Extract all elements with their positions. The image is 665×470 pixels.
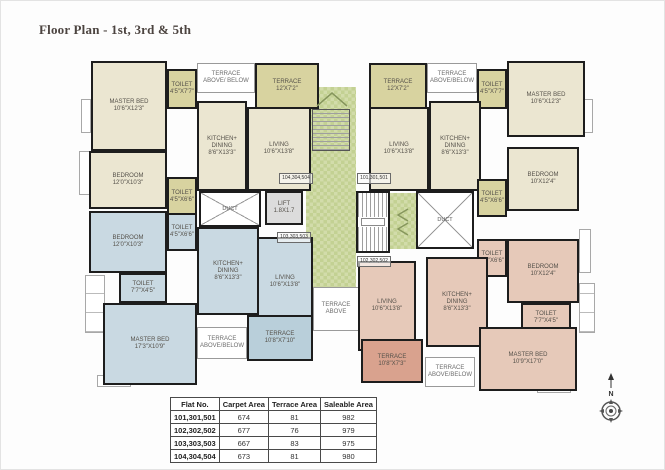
room-label: TERRACEABOVE <box>314 288 358 330</box>
label-line: LIVING <box>269 142 289 149</box>
lift: LIFT1.8X1.7 <box>265 191 303 225</box>
room-living-bottom-left: LIVING10'6"X13'8" <box>257 237 313 327</box>
room-toilet-top-right-2: TOILET4'5"X6'6" <box>477 179 507 217</box>
label-line: TOILET <box>482 191 503 198</box>
flat-no-cell: 104,304,504 <box>171 450 220 463</box>
room-label: TERRACE12'X7'2" <box>371 65 425 107</box>
label-line: 12'0"X10'3" <box>113 180 144 187</box>
label-line: 12'X7'2" <box>387 86 409 93</box>
room-master-bed-bottom-right: MASTER BED10'9"X17'0" <box>479 327 577 391</box>
terrace-above-below-top-right: TERRACEABOVE/BELOW <box>427 63 477 93</box>
label-line: 10'9"X17'0" <box>513 359 544 366</box>
room-toilet-bottom-left-1: TOILET4'5"X6'6" <box>167 213 197 251</box>
room-label: KITCHEN+DINING8'6"X13'3" <box>431 103 479 189</box>
label-line: DINING <box>445 143 466 150</box>
room-master-bed-top-right: MASTER BED10'6"X12'3" <box>507 61 585 137</box>
table-header-row: Flat No.Carpet AreaTerrace AreaSaleable … <box>171 398 377 411</box>
room-bedroom-top-left: BEDROOM12'0"X10'3" <box>89 151 167 209</box>
room-label: MASTER BED10'6"X12'3" <box>509 63 583 135</box>
area-value-cell: 76 <box>268 424 320 437</box>
stair-direction-arrows <box>390 193 416 249</box>
area-value-cell: 83 <box>268 437 320 450</box>
room-label: BEDROOM12'0"X10'3" <box>91 213 165 271</box>
label-line: ABOVE <box>326 309 347 316</box>
label-line: TERRACE <box>266 331 295 338</box>
room-label: BEDROOM10'X12'4" <box>509 149 577 209</box>
room-kitchen-bottom-left: KITCHEN+DINING8'6"X13'3" <box>197 227 259 315</box>
label-line: ABOVE/BELOW <box>428 372 472 379</box>
label-line: TERRACE <box>384 79 413 86</box>
label-line: KITCHEN+ <box>440 136 470 143</box>
staircase-top <box>312 109 350 151</box>
table-row: 104,304,50467381980 <box>171 450 377 463</box>
label-line: 10'8"X7'3" <box>378 361 405 368</box>
duct-left: DUCT <box>199 191 261 227</box>
stair-flight-lower <box>358 227 388 251</box>
duct-right: DUCT <box>416 191 474 249</box>
label-line: 7'7"X4'5" <box>131 288 155 295</box>
room-kitchen-top-left: KITCHEN+DINING8'6"X13'3" <box>197 101 247 191</box>
label-line: TERRACE <box>438 71 467 78</box>
stair-break-line <box>314 89 350 109</box>
label-line: BEDROOM <box>527 264 558 271</box>
label-line: 12'0"X10'3" <box>113 242 144 249</box>
room-label: TOILET4'5"X6'6" <box>479 181 505 215</box>
table-row: 103,303,50366783975 <box>171 437 377 450</box>
room-label: LIVING10'6"X13'8" <box>259 239 311 325</box>
label-line: LIFT <box>278 201 290 208</box>
label-line: 10'6"X13'8" <box>270 282 301 289</box>
label-line: LIVING <box>275 275 295 282</box>
label-line: DINING <box>212 143 233 150</box>
label-line: MASTER BED <box>130 337 169 344</box>
label-line: 10'6"X12'3" <box>531 99 562 106</box>
terrace-above-center: TERRACEABOVE <box>313 287 359 331</box>
stair-handrail <box>361 218 385 226</box>
stair-landing <box>390 193 416 249</box>
label-line: LIVING <box>377 299 397 306</box>
room-label: TOILET4'5"X7'7" <box>169 71 195 107</box>
label-line: TOILET <box>172 82 193 89</box>
label-line: KITCHEN+ <box>207 136 237 143</box>
duct-label: DUCT <box>437 217 452 223</box>
label-line: TERRACE <box>212 71 241 78</box>
label-line: MASTER BED <box>526 92 565 99</box>
bay-window <box>85 275 105 333</box>
room-master-bed-top-left: MASTER BED10'6"X12'3" <box>91 61 167 151</box>
area-value-cell: 677 <box>219 424 268 437</box>
label-line: KITCHEN+ <box>442 292 472 299</box>
room-bedroom-bottom-left: BEDROOM12'0"X10'3" <box>89 211 167 273</box>
area-value-cell: 673 <box>219 450 268 463</box>
room-label: TERRACEABOVE/BELOW <box>428 64 476 92</box>
label-line: TERRACE <box>208 336 237 343</box>
room-label: TERRACE10'8"X7'3" <box>363 341 421 381</box>
terrace-above-below-bottom-right: TERRACEABOVE/BELOW <box>425 357 475 387</box>
room-label: TERRACE12'X7'2" <box>257 65 317 107</box>
room-label: TOILET4'5"X6'6" <box>169 215 195 249</box>
north-compass: N <box>595 373 627 427</box>
bay-window <box>579 229 591 273</box>
room-label: BEDROOM12'0"X10'3" <box>91 153 165 207</box>
room-label: TERRACEABOVE/BELOW <box>198 328 246 358</box>
label-line: LIVING <box>389 142 409 149</box>
label-line: BEDROOM <box>112 173 143 180</box>
room-label: MASTER BED10'6"X12'3" <box>93 63 165 149</box>
table-row: 102,302,50267776979 <box>171 424 377 437</box>
label-line: KITCHEN+ <box>213 261 243 268</box>
label-line: 4'5"X7'7" <box>480 89 504 96</box>
room-bedroom-top-right: BEDROOM10'X12'4" <box>507 147 579 211</box>
label-line: 10'8"X7'10" <box>265 338 296 345</box>
label-line: 17'3"X10'9" <box>135 344 166 351</box>
area-table: Flat No.Carpet AreaTerrace AreaSaleable … <box>170 397 377 463</box>
label-line: TOILET <box>536 311 557 318</box>
staircase-main <box>356 191 390 253</box>
duct-label: DUCT <box>222 206 237 212</box>
label-line: TOILET <box>133 281 154 288</box>
room-label: KITCHEN+DINING8'6"X13'3" <box>199 229 257 313</box>
label-line: 10'6"X13'8" <box>384 149 415 156</box>
terrace-above-below-top-left: TERRACEABOVE/ BELOW <box>197 63 255 93</box>
room-label: TOILET7'7"X4'5" <box>121 275 165 301</box>
label-line: TERRACE <box>322 302 351 309</box>
area-value-cell: 81 <box>268 450 320 463</box>
label-line: 8'6"X13'3" <box>441 150 468 157</box>
label-line: TOILET <box>172 225 193 232</box>
label-line: 12'X7'2" <box>276 86 298 93</box>
bay-window <box>579 283 595 333</box>
label-line: DINING <box>447 299 468 306</box>
room-master-bed-bottom-left: MASTER BED17'3"X10'9" <box>103 303 197 385</box>
area-value-cell: 975 <box>321 437 377 450</box>
label-line: 8'6"X13'3" <box>214 275 241 282</box>
label-line: TERRACE <box>436 365 465 372</box>
table-header-cell: Carpet Area <box>219 398 268 411</box>
label-line: BEDROOM <box>527 172 558 179</box>
floor-plan-page: Floor Plan - 1st, 3rd & 5th MASTER BED10… <box>0 0 665 470</box>
compass-n-label: N <box>608 391 613 398</box>
room-toilet-bottom-left-2: TOILET7'7"X4'5" <box>119 273 167 303</box>
table-header-cell: Terrace Area <box>268 398 320 411</box>
room-terrace-top-right: TERRACE12'X7'2" <box>369 63 427 109</box>
room-bedroom-bottom-right: BEDROOM10'X12'4" <box>507 239 579 303</box>
room-label: TERRACE10'8"X7'10" <box>249 317 311 359</box>
label-line: 7'7"X4'5" <box>534 318 558 325</box>
room-toilet-top-left-2: TOILET4'5"X6'6" <box>167 177 197 217</box>
room-label: LIVING10'6"X13'8" <box>360 263 414 349</box>
area-value-cell: 979 <box>321 424 377 437</box>
stair-flight-upper <box>358 193 388 217</box>
room-toilet-top-right-1: TOILET4'5"X7'7" <box>477 69 507 109</box>
label-line: DINING <box>218 268 239 275</box>
room-kitchen-top-right: KITCHEN+DINING8'6"X13'3" <box>429 101 481 191</box>
page-title: Floor Plan - 1st, 3rd & 5th <box>39 22 191 38</box>
flat-number-badge-top-right: 101,301,501 <box>357 173 391 184</box>
flat-number-badge-top-left: 104,304,504 <box>279 173 313 184</box>
room-label: KITCHEN+DINING8'6"X13'3" <box>199 103 245 189</box>
flat-no-cell: 102,302,502 <box>171 424 220 437</box>
room-label: KITCHEN+DINING8'6"X13'3" <box>428 259 486 345</box>
room-label: MASTER BED10'9"X17'0" <box>481 329 575 389</box>
label-line: ABOVE/BELOW <box>430 78 474 85</box>
label-line: 4'5"X6'6" <box>170 232 194 239</box>
terrace-above-below-bottom-left: TERRACEABOVE/BELOW <box>197 327 247 359</box>
table-header-cell: Saleable Area <box>321 398 377 411</box>
room-label: TERRACEABOVE/ BELOW <box>198 64 254 92</box>
label-line: ABOVE/ BELOW <box>203 78 249 85</box>
flat-no-cell: 103,303,503 <box>171 437 220 450</box>
table-row: 101,301,50167481982 <box>171 411 377 424</box>
area-value-cell: 674 <box>219 411 268 424</box>
label-line: 10'6"X13'8" <box>264 149 295 156</box>
area-value-cell: 982 <box>321 411 377 424</box>
room-terrace-bottom-right: TERRACE10'8"X7'3" <box>361 339 423 383</box>
bay-window <box>81 99 91 133</box>
flat-no-cell: 101,301,501 <box>171 411 220 424</box>
area-value-cell: 980 <box>321 450 377 463</box>
label-line: MASTER BED <box>508 352 547 359</box>
label-line: MASTER BED <box>109 99 148 106</box>
flat-number-badge-bottom-right: 102,302,502 <box>357 256 391 267</box>
table-header-cell: Flat No. <box>171 398 220 411</box>
room-terrace-bottom-left: TERRACE10'8"X7'10" <box>247 315 313 361</box>
room-label: TOILET4'5"X6'6" <box>169 179 195 215</box>
room-toilet-top-left-1: TOILET4'5"X7'7" <box>167 69 197 109</box>
area-value-cell: 667 <box>219 437 268 450</box>
label-line: 10'X12'4" <box>530 179 555 186</box>
label-line: ABOVE/BELOW <box>200 343 244 350</box>
room-terrace-top-left: TERRACE12'X7'2" <box>255 63 319 109</box>
area-table-body: 101,301,50167481982102,302,5026777697910… <box>171 411 377 463</box>
room-label: MASTER BED17'3"X10'9" <box>105 305 195 383</box>
room-label: BEDROOM10'X12'4" <box>509 241 577 301</box>
room-living-bottom-right: LIVING10'6"X13'8" <box>358 261 416 351</box>
label-line: 10'6"X12'3" <box>114 106 145 113</box>
label-line: BEDROOM <box>112 235 143 242</box>
flat-number-badge-bottom-left: 103,303,503 <box>277 232 311 243</box>
label-line: 10'X12'4" <box>530 271 555 278</box>
area-value-cell: 81 <box>268 411 320 424</box>
label-line: 4'5"X6'6" <box>170 197 194 204</box>
label-line: TOILET <box>482 82 503 89</box>
lift-label: LIFT1.8X1.7 <box>267 193 301 223</box>
label-line: 4'5"X6'6" <box>480 198 504 205</box>
room-label: TERRACEABOVE/BELOW <box>426 358 474 386</box>
label-line: 8'6"X13'3" <box>443 306 470 313</box>
label-line: 1.8X1.7 <box>274 208 295 215</box>
room-label: TOILET4'5"X7'7" <box>479 71 505 107</box>
label-line: 4'5"X7'7" <box>170 89 194 96</box>
label-line: TOILET <box>172 190 193 197</box>
label-line: TERRACE <box>273 79 302 86</box>
label-line: TERRACE <box>378 354 407 361</box>
label-line: 10'6"X13'8" <box>372 306 403 313</box>
label-line: 8'6"X13'3" <box>208 150 235 157</box>
